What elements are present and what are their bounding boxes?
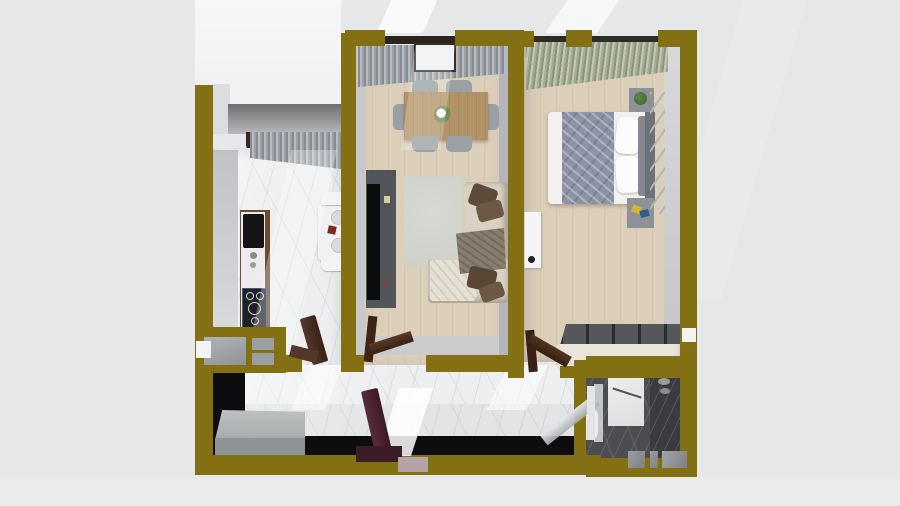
tv-red-light	[383, 281, 387, 285]
wall-top-living-right	[455, 30, 524, 46]
bathroom-soap-dish-1	[658, 378, 670, 385]
bed-duvet	[562, 112, 614, 204]
kitchen-faucet	[250, 252, 257, 259]
kitchen-passthrough-panel-small-2	[252, 353, 274, 365]
wall-hall-top-c	[426, 355, 508, 372]
kitchen-passthrough-panel-small-1	[252, 338, 274, 350]
living-rug	[404, 176, 462, 266]
wall-left	[195, 85, 213, 457]
wall-top-bedroom-stub-1	[524, 31, 534, 47]
storage-bench-top	[215, 410, 305, 440]
tv-screen	[367, 184, 380, 300]
living-left-wall-face	[356, 46, 365, 355]
wall-top-bedroom-stub-2	[566, 30, 592, 47]
bathroom-window-pane-2	[650, 451, 658, 468]
dining-chair-bottom-2	[446, 136, 472, 152]
wall-top-living-left	[345, 30, 385, 46]
wall-living-bedroom	[508, 46, 524, 378]
bathroom-window-pane-1	[628, 451, 645, 468]
entrance-door-sill	[398, 457, 428, 472]
bathroom-soap-dish-2	[660, 388, 670, 394]
entrance-door-base	[356, 446, 402, 462]
wall-right	[680, 30, 697, 477]
bottom-bg-band	[0, 478, 900, 506]
wall-right-window	[682, 328, 696, 342]
radiator-dial	[528, 256, 535, 263]
kitchen-faucet-knob	[250, 262, 256, 268]
floor-plan-render	[0, 0, 900, 506]
cooktop-burner-small-1	[246, 292, 254, 300]
wall-top-bedroom-stub-3	[658, 30, 682, 47]
storage-bench-front	[215, 438, 305, 456]
nightstand-plant	[634, 92, 647, 105]
bathroom-window-pane-3	[662, 451, 687, 468]
ladder-shelf	[650, 92, 665, 214]
kitchen-left-wall-face	[213, 150, 238, 328]
tv-sticky-note	[384, 196, 390, 203]
bathroom-door-frame-strip	[587, 386, 595, 440]
kitchen-sink	[243, 214, 264, 248]
kitchen-red-item	[327, 225, 336, 234]
wall-balcony-kitchen-right	[341, 33, 356, 372]
wall-left-window	[196, 341, 211, 358]
wardrobe-top	[560, 324, 680, 346]
wall-hall-top-b	[348, 355, 364, 372]
balcony-parapet-concrete	[228, 104, 341, 134]
wall-bathroom-top	[586, 356, 682, 366]
